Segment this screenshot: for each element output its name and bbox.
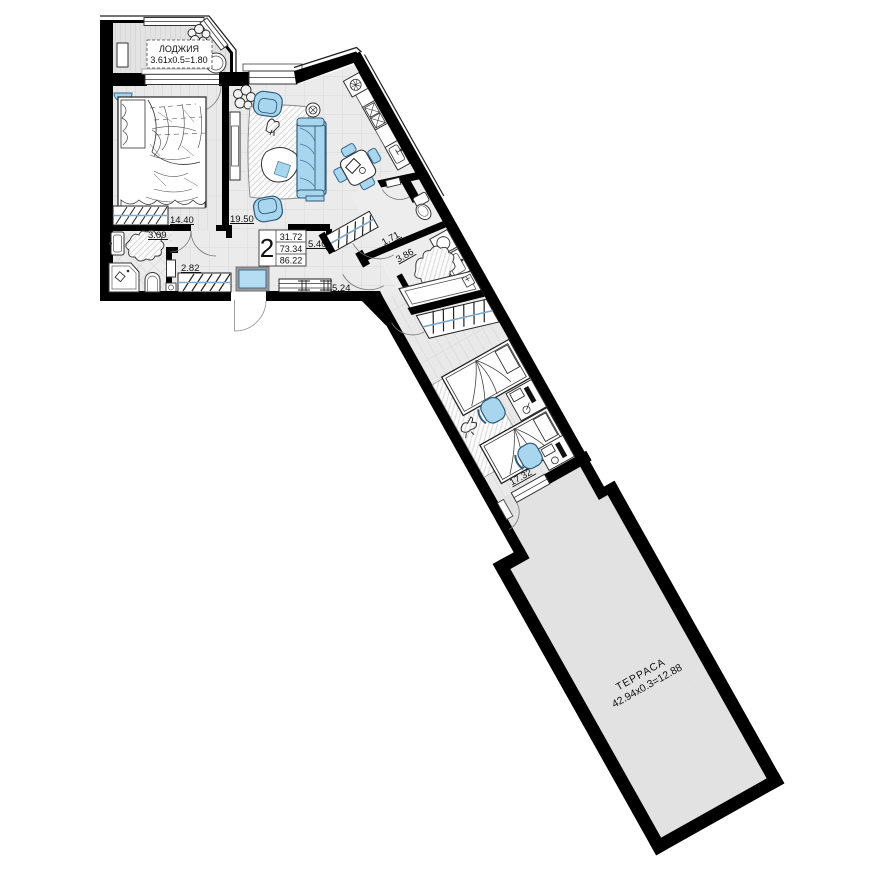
svg-text:3.61х0.5=1.80: 3.61х0.5=1.80 xyxy=(150,55,207,65)
svg-text:ЛОДЖИЯ: ЛОДЖИЯ xyxy=(159,44,199,54)
svg-text:31.72: 31.72 xyxy=(280,232,303,242)
svg-text:73.34: 73.34 xyxy=(280,244,303,254)
svg-text:2: 2 xyxy=(260,233,274,263)
svg-text:86.22: 86.22 xyxy=(280,256,303,266)
